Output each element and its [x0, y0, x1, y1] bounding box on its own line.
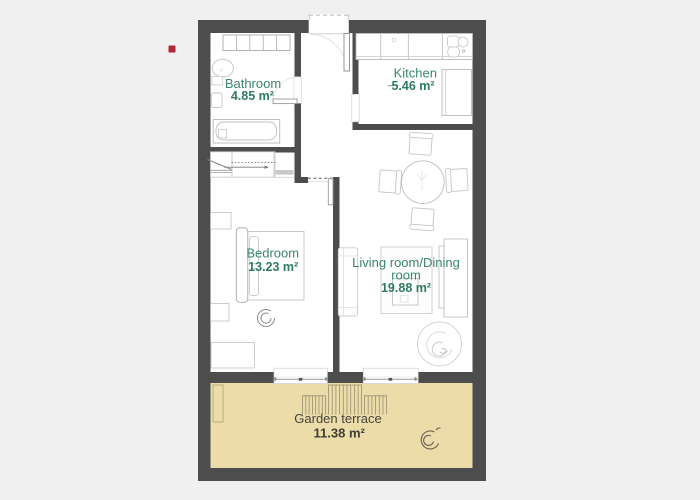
svg-text:11.38 m²: 11.38 m²: [314, 426, 366, 441]
svg-text:Garden terrace: Garden terrace: [294, 411, 381, 426]
svg-text:4.85 m²: 4.85 m²: [231, 89, 274, 103]
svg-text:19.88 m²: 19.88 m²: [381, 281, 431, 295]
svg-text:13.23 m²: 13.23 m²: [248, 260, 298, 274]
svg-text:Bedroom: Bedroom: [246, 246, 299, 261]
svg-text:5.46 m²: 5.46 m²: [391, 79, 434, 93]
